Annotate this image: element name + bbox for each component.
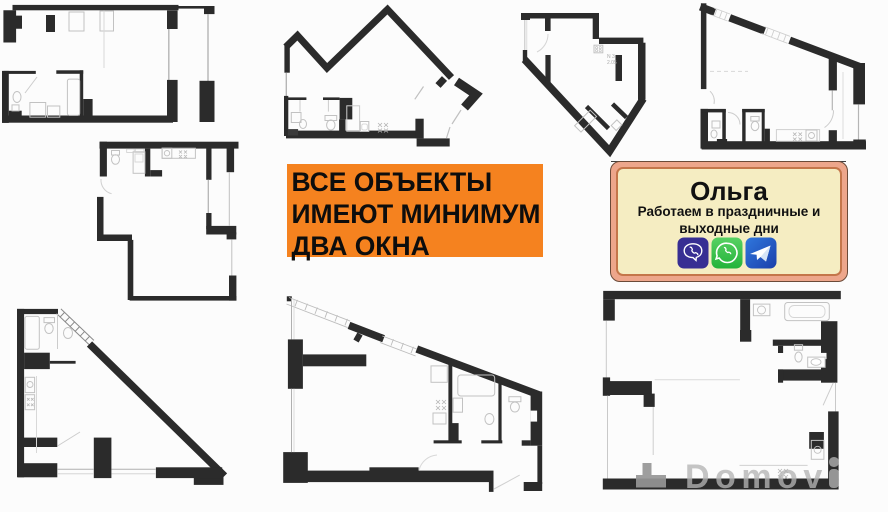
svg-text:2.05: 2.05 bbox=[607, 60, 617, 66]
